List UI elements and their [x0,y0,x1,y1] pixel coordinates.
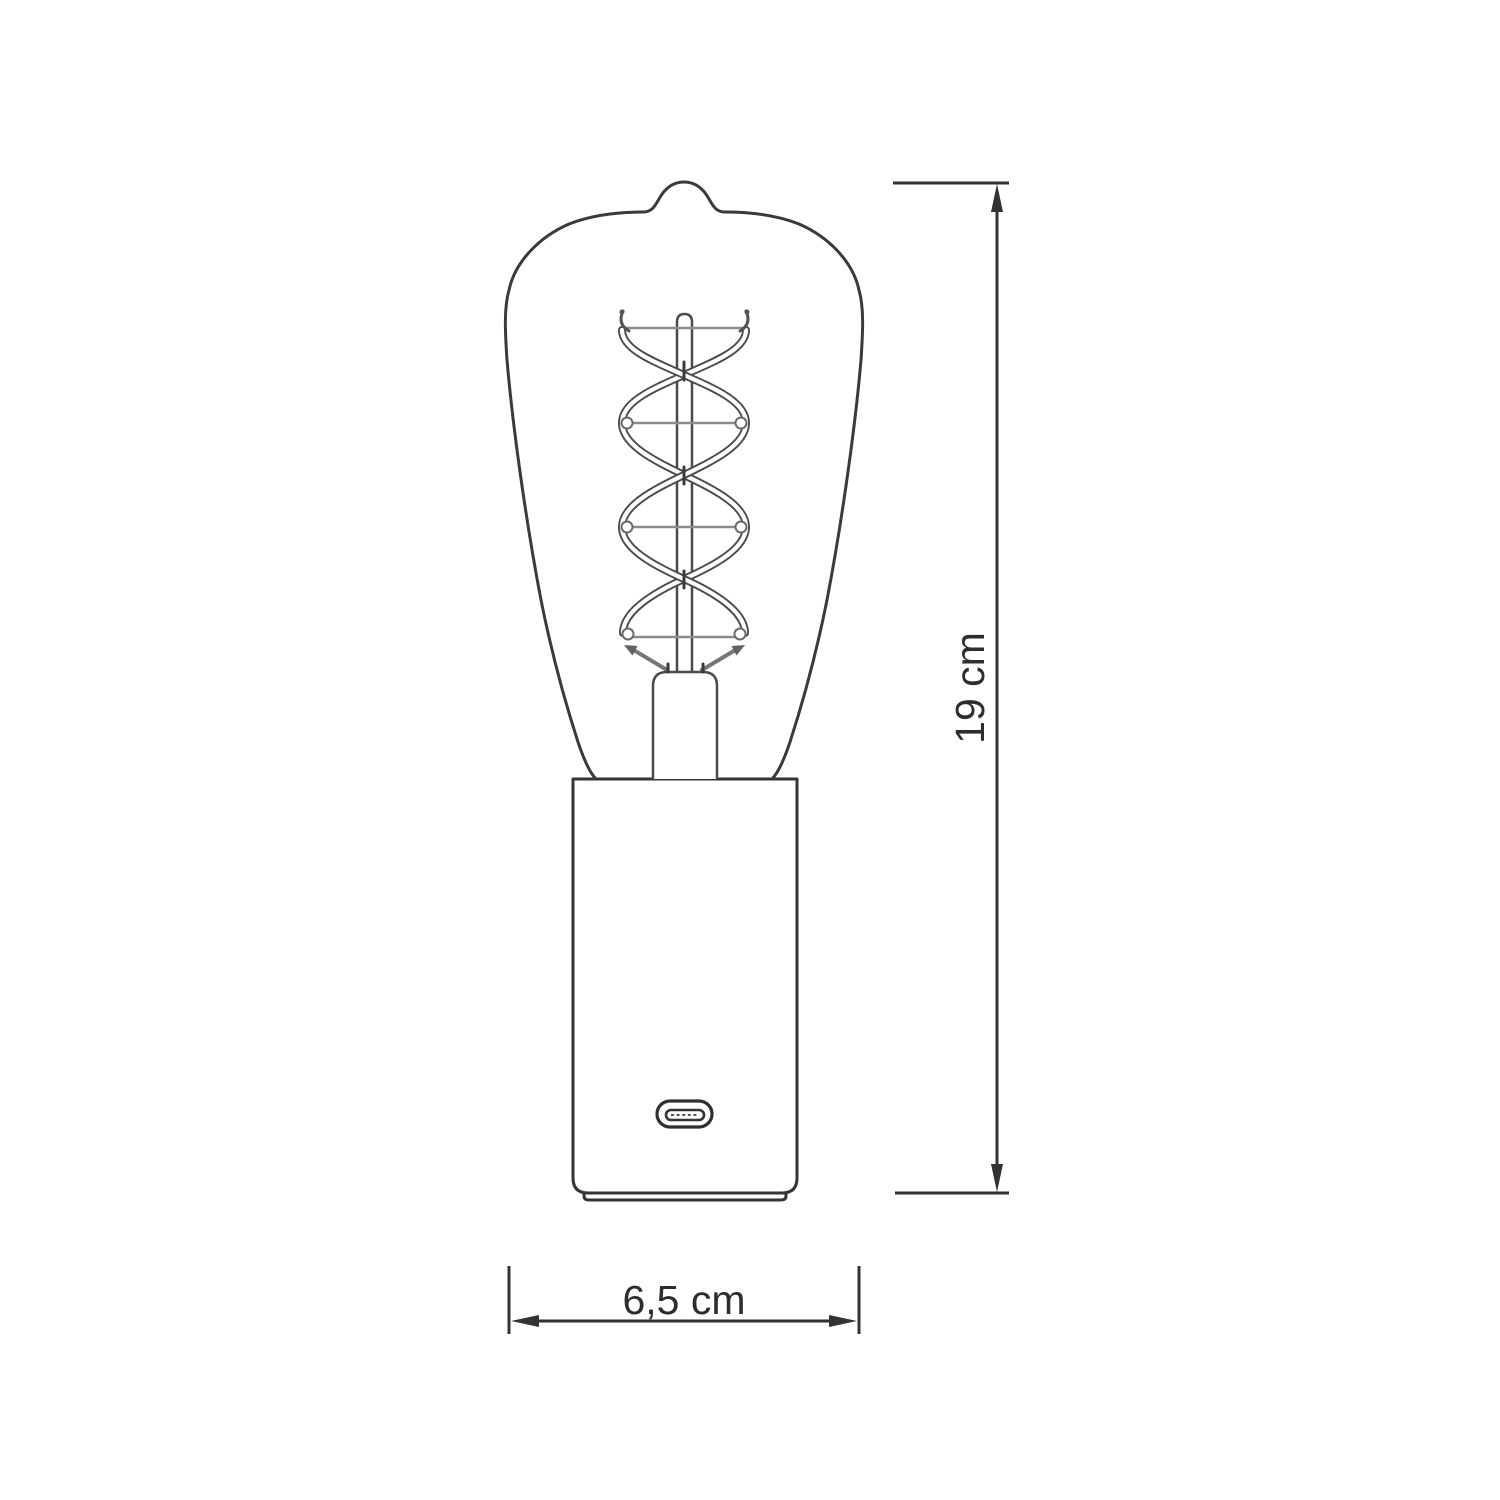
stem-press-mount [653,672,717,779]
arrow-right-icon [829,1315,857,1327]
filament-eyelet [736,418,747,429]
arrow-up-icon [991,184,1003,212]
filament-eyelet [736,522,747,533]
filament-eyelet [623,629,634,640]
filament-hook-tip [620,310,625,315]
filament-eyelet [735,629,746,640]
lamp-base [573,779,797,1200]
dimension-diagram: 19 cm 6,5 cm [0,0,1500,1500]
width-dimension-label: 6,5 cm [622,1277,745,1323]
height-dimension: 19 cm [893,183,1009,1193]
lamp-drawing-svg: 19 cm 6,5 cm [0,0,1500,1500]
filament-eyelet [622,418,633,429]
lead-wire-right [702,649,737,670]
filament-eyelet [622,522,633,533]
lead-wire-left [632,649,667,670]
base-body [573,779,797,1193]
filament-hook-tip [745,310,750,315]
arrow-left-icon [511,1315,539,1327]
height-dimension-label: 19 cm [947,632,993,744]
width-dimension: 6,5 cm [509,1266,859,1334]
base-foot-lip [584,1193,786,1200]
usb-c-port [657,1101,712,1127]
arrow-down-icon [991,1164,1003,1192]
